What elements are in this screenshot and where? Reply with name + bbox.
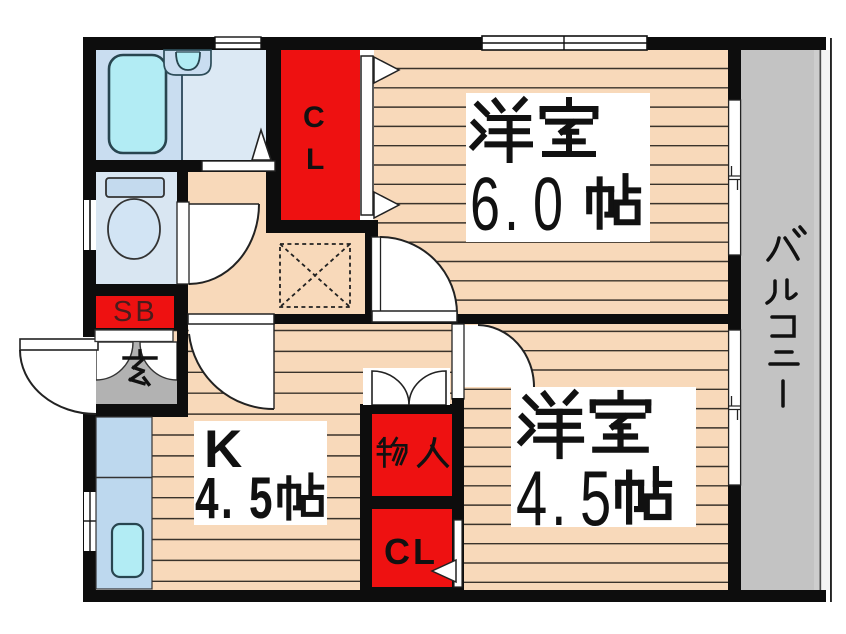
- svg-text:.: .: [221, 465, 233, 530]
- svg-text:4: 4: [516, 455, 547, 542]
- svg-text:C: C: [303, 101, 325, 134]
- svg-text:.: .: [504, 162, 519, 246]
- svg-text:5: 5: [249, 465, 273, 530]
- svg-text:C: C: [384, 531, 410, 572]
- svg-text:0: 0: [533, 162, 563, 246]
- svg-text:SB: SB: [113, 296, 158, 328]
- svg-text:6: 6: [470, 162, 500, 246]
- svg-text:L: L: [413, 531, 435, 572]
- svg-text:L: L: [306, 143, 324, 176]
- svg-text:5: 5: [580, 455, 611, 542]
- svg-text:4: 4: [195, 465, 219, 530]
- svg-text:.: .: [551, 455, 567, 542]
